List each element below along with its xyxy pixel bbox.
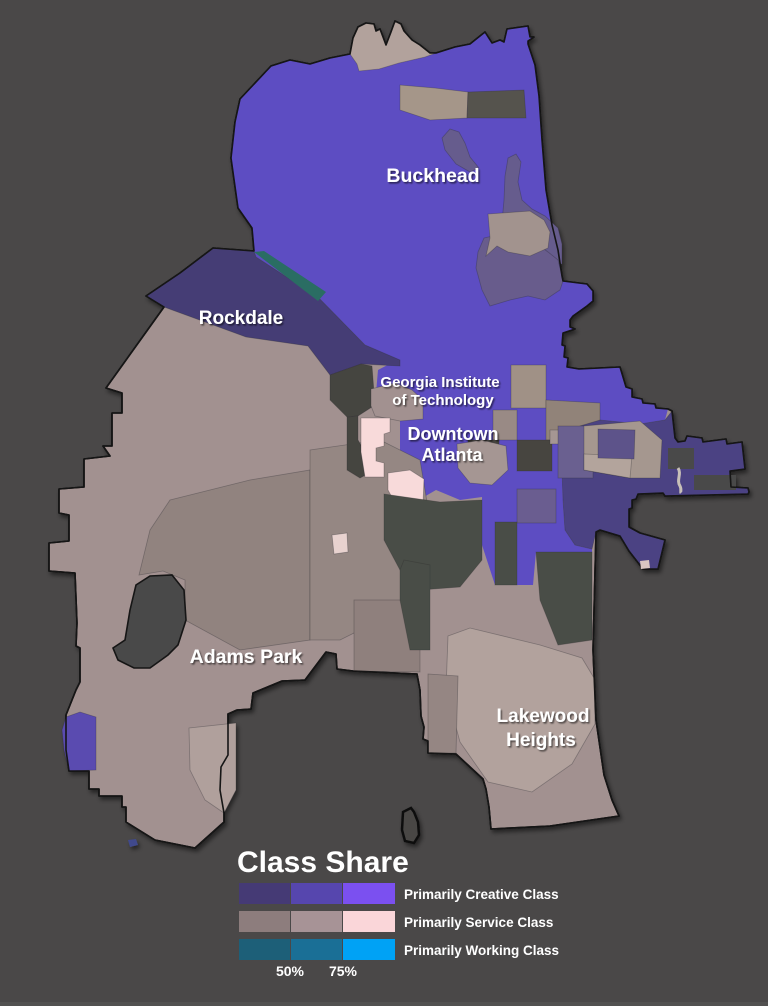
svg-text:Class Share: Class Share: [237, 846, 409, 879]
svg-text:Primarily Creative Class: Primarily Creative Class: [404, 887, 559, 902]
svg-text:Rockdale: Rockdale: [199, 308, 283, 329]
svg-text:75%: 75%: [329, 963, 358, 979]
svg-text:Georgia Institute: Georgia Institute: [380, 374, 499, 391]
svg-text:Heights: Heights: [506, 730, 576, 751]
svg-text:Primarily Working Class: Primarily Working Class: [404, 943, 559, 958]
svg-text:Downtown: Downtown: [408, 424, 499, 444]
svg-text:Atlanta: Atlanta: [421, 445, 483, 465]
svg-text:of Technology: of Technology: [392, 392, 494, 409]
svg-text:Lakewood: Lakewood: [497, 706, 590, 727]
svg-text:Adams Park: Adams Park: [190, 646, 303, 668]
svg-text:Primarily Service Class: Primarily Service Class: [404, 915, 553, 930]
svg-text:Buckhead: Buckhead: [386, 165, 479, 187]
svg-text:50%: 50%: [276, 963, 305, 979]
